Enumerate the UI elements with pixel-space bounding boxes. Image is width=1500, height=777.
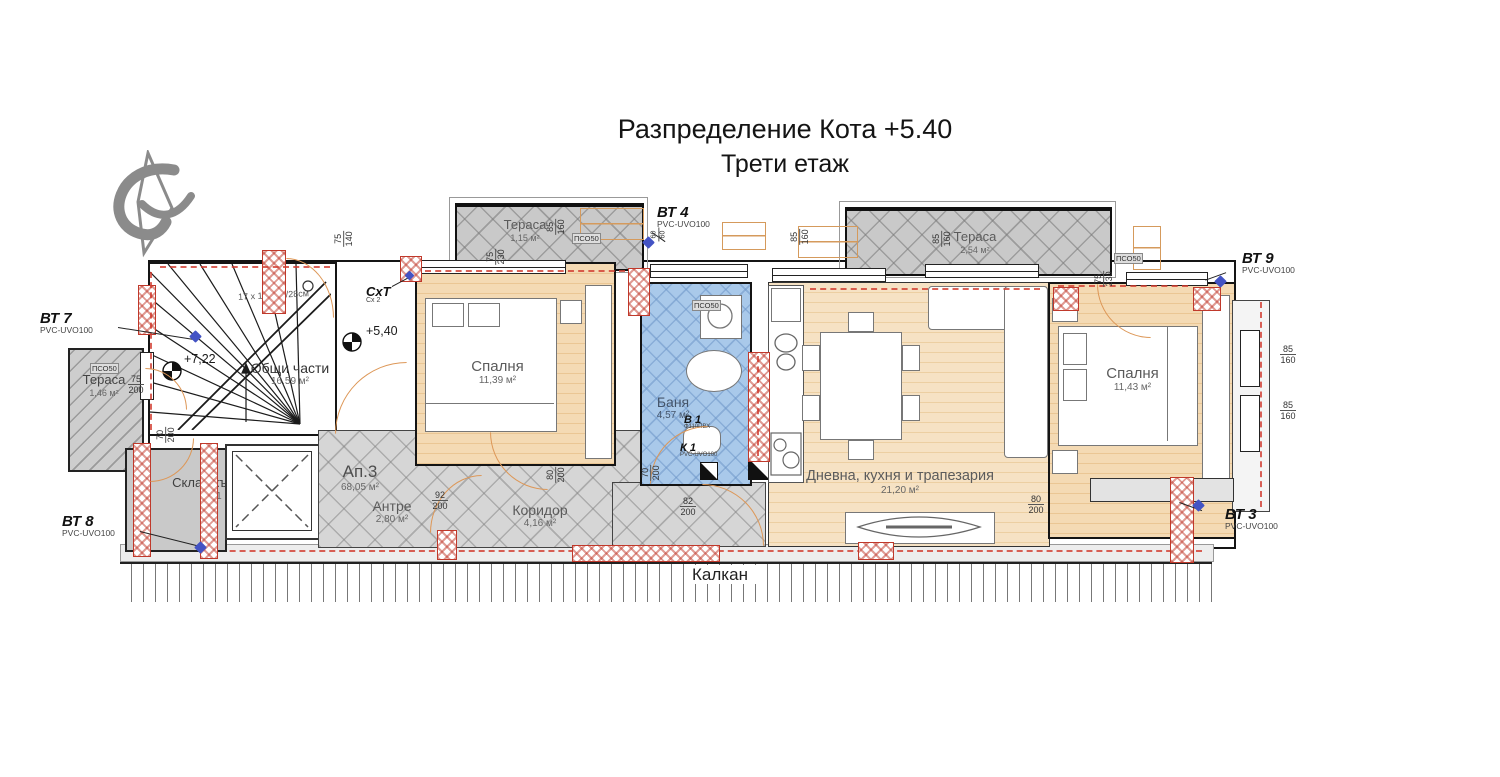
dim-label: 85160 bbox=[1280, 400, 1296, 422]
axis-line-right bbox=[1260, 302, 1262, 507]
callout-sht: СхТ Сх 2 bbox=[366, 284, 391, 304]
nightstand bbox=[560, 300, 582, 324]
kalkan-label-wrap: Калкан bbox=[640, 565, 800, 585]
dim-label: 75200 bbox=[128, 374, 144, 396]
bedroom1-label: Спалня 11,39 м² bbox=[450, 358, 545, 387]
shaft-pier bbox=[748, 352, 770, 462]
apartment-label: Ап.3 68,05 м² bbox=[320, 462, 400, 493]
chair bbox=[848, 440, 874, 460]
chair bbox=[902, 395, 920, 421]
dim-label: 80200 bbox=[545, 467, 567, 483]
chair bbox=[902, 345, 920, 371]
tv-icon bbox=[846, 513, 992, 541]
callout-bt3: ВТ 3 PVC-UVO100 bbox=[1225, 506, 1278, 531]
pso50-tag: ПСО50 bbox=[692, 300, 721, 311]
elevation-upper: +7,22 bbox=[184, 352, 216, 366]
window bbox=[1240, 395, 1260, 452]
wall-pier bbox=[133, 443, 151, 557]
wall-pier bbox=[1053, 287, 1079, 311]
wall-pier bbox=[628, 268, 650, 316]
window bbox=[1240, 330, 1260, 387]
bed-foot-line bbox=[426, 403, 554, 404]
wall-pier bbox=[1170, 477, 1194, 563]
dim-label: 85160 bbox=[545, 219, 567, 235]
kitchen-counter bbox=[768, 285, 804, 483]
dim-label: 85160 bbox=[789, 229, 811, 245]
dim-label: 75230 bbox=[485, 249, 507, 265]
dim-label: 80200 bbox=[1028, 494, 1044, 516]
elevator-x-icon bbox=[233, 452, 311, 530]
wall-pier bbox=[262, 250, 286, 314]
elevator-shaft bbox=[225, 444, 321, 540]
wall-pier bbox=[858, 542, 894, 560]
plan-title: Разпределение Кота +5.40 bbox=[560, 114, 1010, 145]
dim-label: 85160 bbox=[931, 231, 953, 247]
wall-pier bbox=[572, 545, 720, 562]
right-step-wall bbox=[1090, 478, 1234, 502]
callout-bt4: ВТ 4 PVC-UVO100 bbox=[657, 204, 710, 229]
elevation-mark-icon bbox=[341, 331, 363, 353]
dim-label: 70200 bbox=[155, 427, 177, 443]
floor-plan-page: Разпределение Кота +5.40 Трети етаж Калк… bbox=[0, 0, 1500, 777]
dim-label: 70200 bbox=[640, 465, 662, 481]
pso50-tag: ПСО50 bbox=[1114, 253, 1143, 264]
entry-label: Антре 2,80 м² bbox=[352, 498, 432, 526]
pillow bbox=[432, 303, 464, 327]
dim-label: 82200 bbox=[680, 496, 696, 518]
kalkan-label: Калкан bbox=[684, 565, 756, 584]
dim-label: 92200 bbox=[432, 490, 448, 512]
wall-pier bbox=[138, 285, 156, 335]
pillow bbox=[1063, 369, 1087, 401]
wall-pier bbox=[437, 530, 457, 560]
wall-pier bbox=[200, 443, 218, 559]
pillow bbox=[468, 303, 500, 327]
sofa bbox=[1004, 286, 1048, 458]
sink-icon bbox=[770, 330, 802, 374]
compass-logo-icon bbox=[92, 150, 196, 258]
wardrobe bbox=[585, 285, 612, 459]
dining-table bbox=[820, 332, 902, 440]
dim-label: 75140 bbox=[333, 231, 355, 247]
chair bbox=[802, 345, 820, 371]
dim-label: 6060 bbox=[650, 228, 667, 242]
pillow bbox=[1063, 333, 1087, 365]
bedroom2-label: Спалня 11,43 м² bbox=[1085, 365, 1180, 394]
callout-bt7: ВТ 7 PVC-UVO100 bbox=[40, 310, 93, 335]
dim-label: 75230 bbox=[1093, 271, 1115, 287]
terrace-bench bbox=[722, 222, 766, 250]
window bbox=[772, 268, 886, 282]
fridge bbox=[771, 288, 801, 322]
window bbox=[650, 264, 748, 278]
window bbox=[925, 264, 1039, 278]
chair bbox=[802, 395, 820, 421]
chair bbox=[848, 312, 874, 332]
pso50-tag: ПСО50 bbox=[90, 363, 119, 374]
common-area-label: Общи части 16,59 м² bbox=[240, 360, 340, 388]
living-label: Дневна, кухня и трапезария 21,20 м² bbox=[790, 468, 1010, 496]
dim-label: 85160 bbox=[1280, 344, 1296, 366]
corridor-label: Коридор 4,16 м² bbox=[495, 502, 585, 530]
pso50-tag: ПСО50 bbox=[572, 233, 601, 244]
callout-bt8: ВТ 8 PVC-UVO100 bbox=[62, 513, 115, 538]
elevator-inner bbox=[232, 451, 312, 531]
elevation-current: +5,40 bbox=[366, 324, 398, 338]
axis-line bbox=[425, 270, 625, 272]
axis-line bbox=[757, 356, 759, 456]
plan-subtitle: Трети етаж bbox=[560, 150, 1010, 179]
wardrobe bbox=[1202, 295, 1230, 482]
nightstand bbox=[1052, 450, 1078, 474]
callout-bt9: ВТ 9 PVC-UVO100 bbox=[1242, 250, 1295, 275]
wall-pier bbox=[1193, 287, 1221, 311]
washbasin bbox=[686, 350, 742, 392]
tv-stand bbox=[845, 512, 995, 544]
axis-line bbox=[810, 288, 1040, 290]
